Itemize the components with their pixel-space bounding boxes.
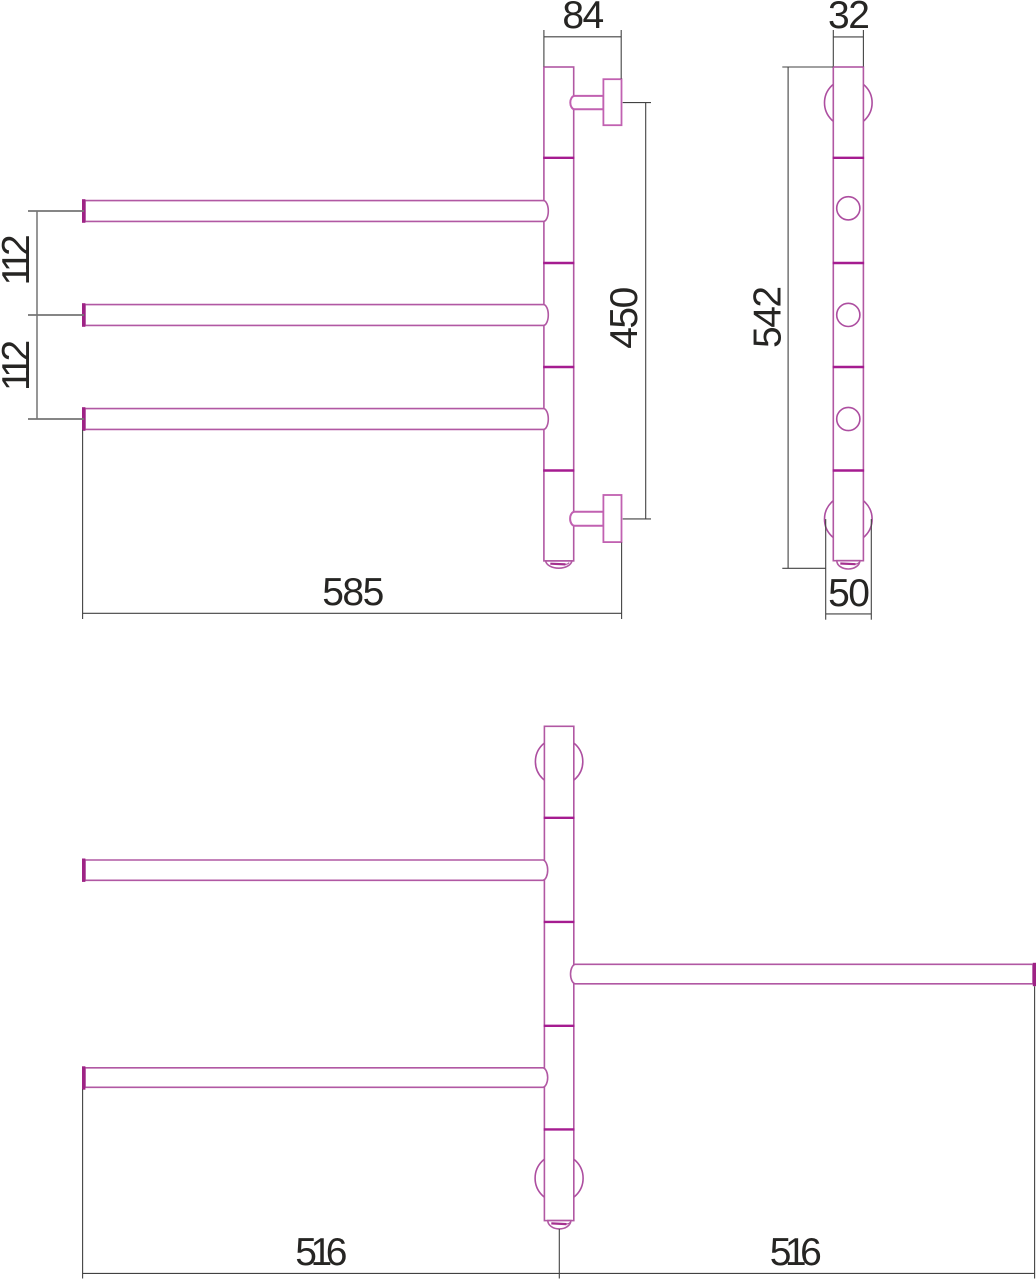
svg-text:32: 32 xyxy=(828,0,868,37)
svg-text:112: 112 xyxy=(0,341,38,391)
svg-text:112: 112 xyxy=(0,236,38,286)
svg-text:450: 450 xyxy=(603,287,646,348)
svg-text:542: 542 xyxy=(747,287,790,348)
svg-text:50: 50 xyxy=(828,572,869,615)
svg-text:516: 516 xyxy=(770,1231,821,1274)
svg-text:516: 516 xyxy=(295,1231,346,1274)
svg-text:84: 84 xyxy=(562,0,603,37)
svg-text:585: 585 xyxy=(322,571,383,614)
